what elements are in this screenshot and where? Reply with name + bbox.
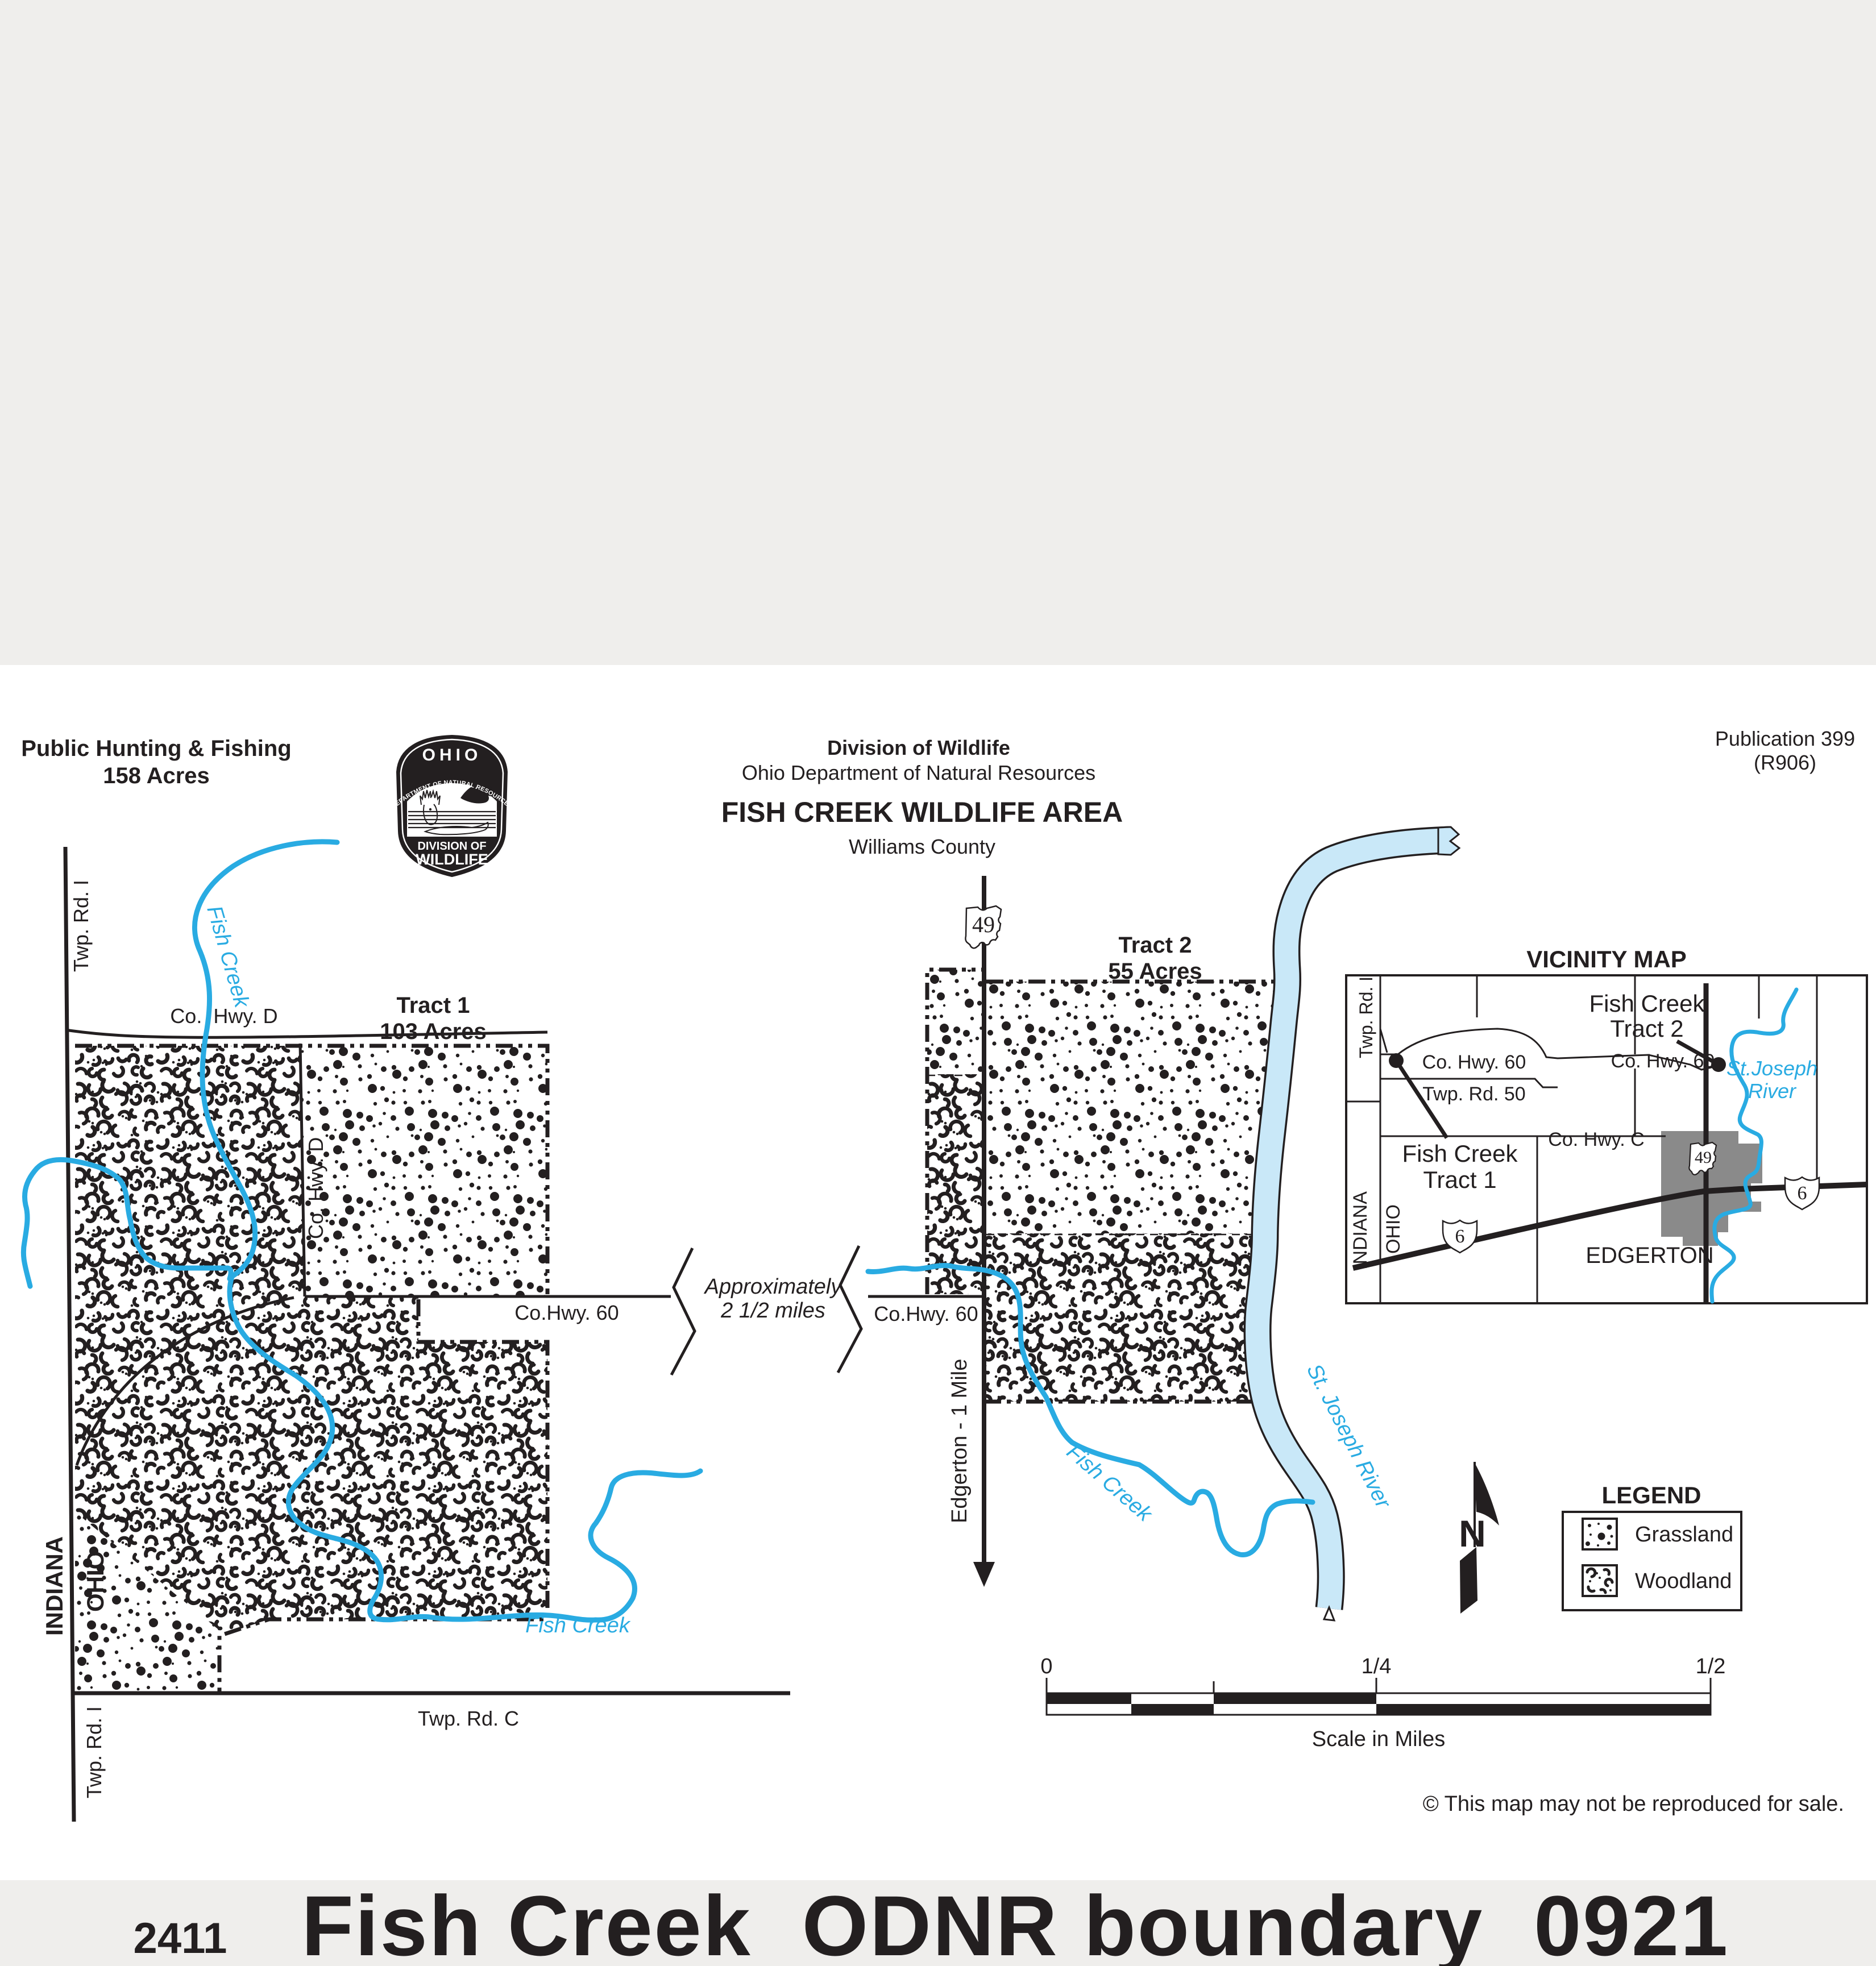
- svg-text:EDGERTON: EDGERTON: [1586, 1243, 1713, 1268]
- svg-text:49: 49: [972, 912, 995, 937]
- svg-text:Co. Hwy. 60: Co. Hwy. 60: [1611, 1050, 1715, 1072]
- svg-text:INDIANA: INDIANA: [41, 1536, 68, 1636]
- svg-text:6: 6: [1798, 1183, 1807, 1204]
- svg-text:FISH CREEK WILDLIFE AREA: FISH CREEK WILDLIFE AREA: [721, 796, 1123, 828]
- svg-text:Approximately: Approximately: [704, 1275, 843, 1299]
- svg-text:Williams County: Williams County: [849, 835, 995, 858]
- svg-text:Co.Hwy. 60: Co.Hwy. 60: [874, 1302, 978, 1325]
- svg-text:Co.Hwy. 60: Co.Hwy. 60: [514, 1301, 619, 1324]
- svg-text:1/2: 1/2: [1696, 1655, 1726, 1678]
- svg-text:OHIO: OHIO: [422, 746, 482, 764]
- svg-text:OHIO: OHIO: [1383, 1204, 1404, 1254]
- svg-text:INDIANA: INDIANA: [1350, 1191, 1371, 1270]
- svg-text:Co. Hwy. 60: Co. Hwy. 60: [1422, 1051, 1526, 1073]
- svg-text:Scale in Miles: Scale in Miles: [1312, 1727, 1445, 1751]
- svg-text:Twp. Rd. I: Twp. Rd. I: [69, 880, 93, 972]
- svg-text:Tract 1: Tract 1: [397, 993, 470, 1018]
- svg-text:St.Joseph: St.Joseph: [1726, 1057, 1817, 1080]
- svg-text:Twp. Rd. C: Twp. Rd. C: [418, 1707, 519, 1730]
- svg-text:Grassland: Grassland: [1635, 1523, 1733, 1547]
- svg-text:Twp. Rd. 50: Twp. Rd. 50: [1422, 1083, 1525, 1105]
- svg-text:1/4: 1/4: [1362, 1655, 1392, 1678]
- svg-text:6: 6: [1455, 1226, 1465, 1247]
- svg-text:Woodland: Woodland: [1635, 1569, 1732, 1593]
- svg-text:0: 0: [1040, 1655, 1052, 1678]
- svg-text:Tract 2: Tract 2: [1119, 933, 1192, 958]
- svg-text:2411: 2411: [134, 1914, 227, 1963]
- svg-text:49: 49: [1695, 1148, 1712, 1167]
- svg-text:N: N: [1459, 1512, 1486, 1554]
- svg-text:Tract 2: Tract 2: [1610, 1015, 1683, 1042]
- svg-text:Fish Creek ODNR boundary 092: Fish Creek ODNR boundary 0921: [301, 1878, 1729, 1966]
- svg-text:Division of Wildlife: Division of Wildlife: [827, 736, 1010, 759]
- svg-text:Ohio Department of Natural Res: Ohio Department of Natural Resources: [742, 761, 1095, 784]
- svg-text:LEGEND: LEGEND: [1601, 1482, 1701, 1508]
- svg-text:(R906): (R906): [1754, 751, 1816, 774]
- svg-text:Fish Creek: Fish Creek: [525, 1614, 631, 1637]
- svg-text:Co. Hwy. D: Co. Hwy. D: [304, 1137, 327, 1239]
- svg-text:Publication 399: Publication 399: [1715, 727, 1855, 750]
- svg-text:WILDLIFE: WILDLIFE: [416, 851, 488, 868]
- svg-text:158 Acres: 158 Acres: [103, 763, 210, 788]
- svg-text:Fish Creek: Fish Creek: [1402, 1140, 1518, 1167]
- svg-text:Twp. Rd. I: Twp. Rd. I: [1356, 976, 1376, 1058]
- svg-text:Tract 1: Tract 1: [1423, 1166, 1496, 1193]
- svg-text:Edgerton - 1 Mile: Edgerton - 1 Mile: [948, 1359, 972, 1523]
- svg-text:55 Acres: 55 Acres: [1108, 959, 1202, 984]
- svg-text:Co. Hwy. D: Co. Hwy. D: [170, 1004, 277, 1028]
- svg-text:103 Acres: 103 Acres: [380, 1019, 487, 1044]
- svg-text:River: River: [1748, 1079, 1797, 1103]
- svg-text:Public Hunting & Fishing: Public Hunting & Fishing: [21, 736, 292, 761]
- svg-text:Twp. Rd. I: Twp. Rd. I: [82, 1706, 106, 1798]
- svg-text:2 1/2 miles: 2 1/2 miles: [720, 1299, 825, 1323]
- svg-text:© This map may not be reproduc: © This map may not be reproduced for sal…: [1423, 1792, 1844, 1816]
- svg-text:Co. Hwy. C: Co. Hwy. C: [1548, 1129, 1644, 1150]
- svg-text:VICINITY MAP: VICINITY MAP: [1526, 946, 1687, 972]
- svg-text:Fish Creek: Fish Creek: [1589, 990, 1705, 1017]
- svg-text:OHIO: OHIO: [82, 1551, 109, 1612]
